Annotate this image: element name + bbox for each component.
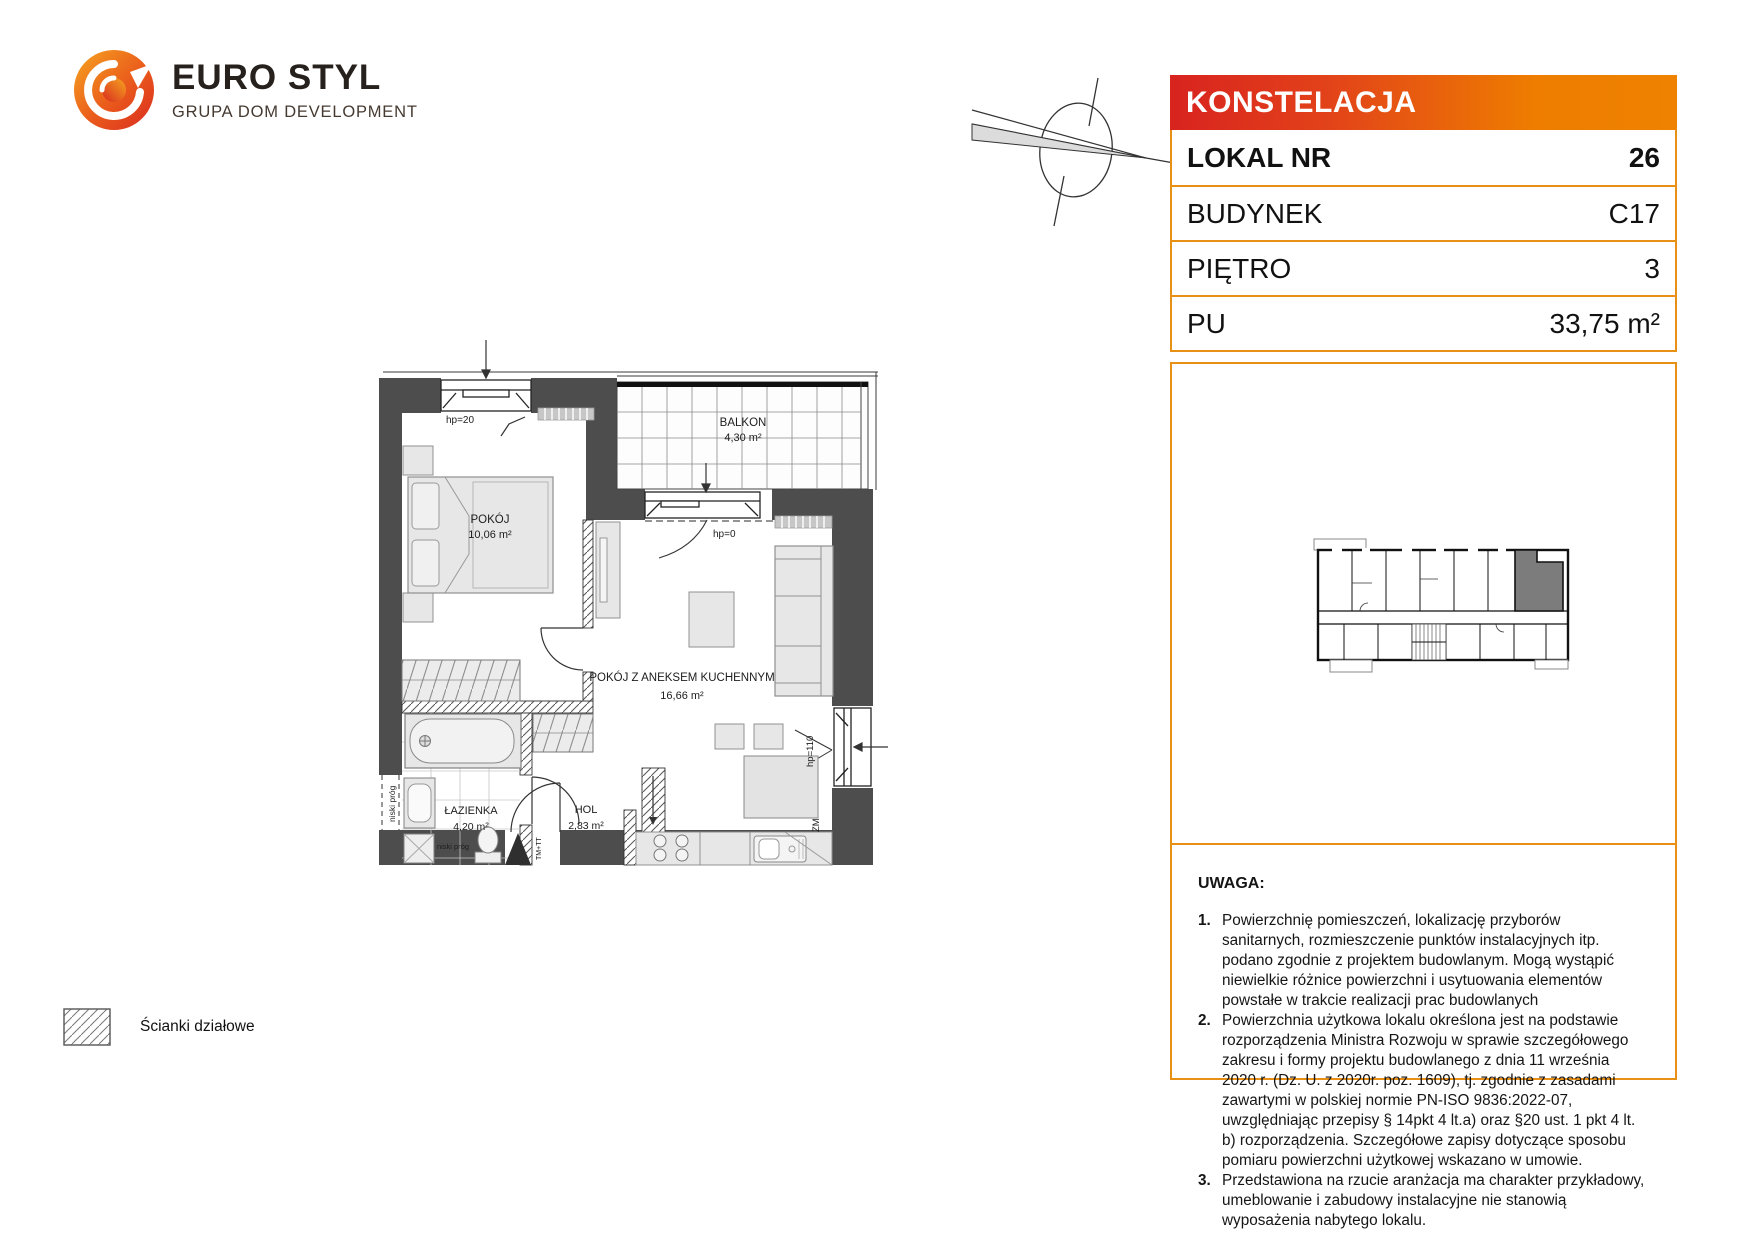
project-banner: KONSTELACJA xyxy=(1170,75,1677,130)
partition-hatch-swatch xyxy=(63,1008,111,1046)
ann-hp0: hp=0 xyxy=(713,529,736,540)
ann-niski-prog-vertical: niski próg xyxy=(387,785,397,822)
room-balkon-area: 4,30 m² xyxy=(724,432,762,444)
ann-niski-prog: niski próg xyxy=(437,842,469,851)
legend-label: Ścianki działowe xyxy=(140,1018,255,1036)
sofa xyxy=(775,546,833,696)
entrance-door xyxy=(511,783,560,832)
row-pu: PU 33,75 m² xyxy=(1172,295,1675,350)
room-salon-area: 16,66 m² xyxy=(660,690,704,702)
project-name: KONSTELACJA xyxy=(1186,86,1417,120)
bathtub xyxy=(405,714,521,768)
legend: Ścianki działowe xyxy=(63,1008,255,1046)
note-item-3: 3. Przedstawiona na rzucie aranżacja ma … xyxy=(1198,1171,1647,1231)
lokal-nr-value: 26 xyxy=(1629,142,1660,174)
staircase xyxy=(1412,624,1446,660)
pietro-label: PIĘTRO xyxy=(1187,253,1291,285)
north-compass-icon xyxy=(968,66,1188,236)
building-location-section xyxy=(1172,364,1675,845)
room-salon-label: POKÓJ Z ANEKSEM KUCHENNYM xyxy=(589,671,774,684)
floor-plan: POKÓJ 10,06 m² BALKON 4,30 m² POKÓJ Z AN… xyxy=(355,320,895,880)
details-panel: UWAGA: 1. Powierzchnię pomieszczeń, loka… xyxy=(1170,362,1677,1080)
ann-hp110: hp=110 xyxy=(805,736,816,767)
row-pietro: PIĘTRO 3 xyxy=(1172,240,1675,295)
brand-logo: EURO STYL GRUPA DOM DEVELOPMENT xyxy=(72,48,418,132)
ann-tm-tt: TM+TT xyxy=(536,837,543,860)
brand-tagline: GRUPA DOM DEVELOPMENT xyxy=(172,103,418,122)
balcony-door-swing xyxy=(659,520,707,558)
tv-sideboard xyxy=(596,522,620,618)
unit-info-table: KONSTELACJA LOKAL NR 26 BUDYNEK C17 PIĘT… xyxy=(1170,75,1677,352)
room-balkon-label: BALKON xyxy=(720,417,767,429)
bathroom-sink xyxy=(404,778,435,828)
ann-hp20: hp=20 xyxy=(446,415,475,426)
room-lazienka-area: 4,20 m² xyxy=(453,821,489,833)
note-item-2: 2. Powierzchnia użytkowa lokalu określon… xyxy=(1198,1011,1647,1170)
shelf-unit xyxy=(533,714,593,752)
dining-set xyxy=(715,724,818,818)
coffee-table xyxy=(689,592,734,647)
pietro-value: 3 xyxy=(1644,253,1660,285)
note-item-1: 1. Powierzchnię pomieszczeń, lokalizację… xyxy=(1198,911,1647,1010)
eurostyl-swirl-icon xyxy=(72,48,156,132)
note-number: 2. xyxy=(1198,1011,1222,1170)
notes-section: UWAGA: 1. Powierzchnię pomieszczeń, loka… xyxy=(1172,845,1675,1231)
note-number: 3. xyxy=(1198,1171,1222,1231)
room-pokoj-label: POKÓJ xyxy=(471,513,510,526)
room-pokoj-area: 10,06 m² xyxy=(468,529,512,541)
note-text: Powierzchnię pomieszczeń, lokalizację pr… xyxy=(1222,911,1647,1010)
bedroom-door xyxy=(541,628,583,670)
ann-zm: ZM xyxy=(811,818,822,832)
kitchen-sink xyxy=(754,836,806,862)
note-text: Powierzchnia użytkowa lokalu określona j… xyxy=(1222,1011,1647,1170)
budynek-value: C17 xyxy=(1609,198,1660,230)
brand-name: EURO STYL xyxy=(172,60,418,97)
wardrobe xyxy=(402,660,520,701)
brand-text-block: EURO STYL GRUPA DOM DEVELOPMENT xyxy=(172,60,418,123)
pu-value: 33,75 m² xyxy=(1550,308,1661,340)
unit-info-rows: LOKAL NR 26 BUDYNEK C17 PIĘTRO 3 PU 33,7… xyxy=(1170,130,1677,352)
bathroom-door xyxy=(532,777,579,824)
balcony-door-window xyxy=(645,492,760,518)
bedroom-window xyxy=(441,380,531,411)
notes-title: UWAGA: xyxy=(1198,875,1647,893)
room-hol-area: 2,83 m² xyxy=(568,820,604,832)
note-text: Przedstawiona na rzucie aranżacja ma cha… xyxy=(1222,1171,1647,1231)
lokal-nr-label: LOKAL NR xyxy=(1187,142,1331,174)
row-budynek: BUDYNEK C17 xyxy=(1172,185,1675,240)
room-lazienka-label: ŁAZIENKA xyxy=(444,805,498,817)
pu-label: PU xyxy=(1187,308,1226,340)
row-lokal-nr: LOKAL NR 26 xyxy=(1172,130,1675,185)
room-hol-label: HOL xyxy=(575,804,598,816)
budynek-label: BUDYNEK xyxy=(1187,198,1322,230)
building-mini-plan xyxy=(1310,531,1582,713)
washing-machine xyxy=(404,834,434,863)
note-number: 1. xyxy=(1198,911,1222,1010)
